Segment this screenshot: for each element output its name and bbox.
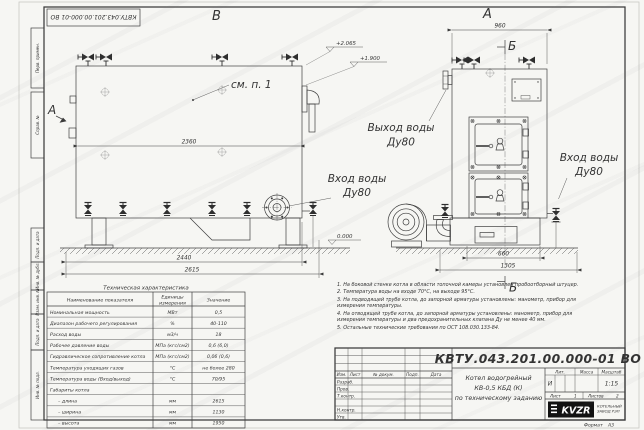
table-cell: °С (170, 365, 176, 371)
outlet-leader (429, 90, 446, 121)
see-note-label: см. п. 1 (231, 79, 272, 91)
logo-text: KVZR (562, 406, 591, 417)
tb-row-prov: Пров. (337, 386, 349, 391)
view-b-label: В (212, 9, 221, 24)
ground-hatch (60, 248, 350, 254)
drain-valve-icon (208, 203, 216, 216)
table-cell: мм (169, 411, 177, 416)
ash-door-handle (480, 233, 494, 238)
lifting-lug-icon (100, 87, 110, 97)
top-valve-icon (519, 57, 535, 70)
side-tab (70, 96, 76, 103)
top-stamp: КВТУ.043.201.00.000-01 ВО (47, 9, 140, 26)
flue-outlet (302, 86, 319, 132)
lifting-lug-icon (100, 150, 110, 160)
outlet-water-label: Выход воды (368, 122, 435, 134)
elev-top-label: +2.065 (336, 41, 357, 47)
drain-valve-icon (84, 203, 92, 216)
table-header: Наименование показателя (67, 298, 134, 304)
tech-table-rows: Номинальная мощностьМВт0,5Диапазон рабоч… (47, 310, 245, 428)
top-valve-icon (452, 57, 468, 70)
note-item: 5. Остальные технические требования по О… (337, 325, 582, 331)
dim-1305-label: 1305 (501, 264, 516, 270)
top-stamp-number: КВТУ.043.201.00.000-01 ВО (50, 13, 136, 20)
tb-row-utv: Утв. (337, 414, 346, 419)
table-cell: Температура воды (Вход/выход) (50, 376, 131, 382)
support-leg (92, 218, 106, 245)
outlet-water-dn: Ду80 (386, 137, 415, 149)
drain-valve-icon (119, 203, 127, 216)
table-header: Единицы (161, 295, 184, 301)
table-cell: 70/95 (212, 376, 226, 382)
boiler-base (450, 218, 540, 245)
support-leg (286, 218, 300, 245)
dim-2440-label: 2440 (177, 256, 192, 262)
tb-col-docum: № докум. (372, 372, 394, 377)
kvzr-logo: KVZR (548, 402, 594, 418)
table-header: измерения (159, 302, 186, 307)
format-label: Формат А3 (584, 423, 614, 429)
table-cell: МВт (168, 310, 178, 316)
tb-col-podp: Подп. (406, 372, 419, 377)
drawing-sheet: Перв. примен. Справ. № Подп. и дата Инв.… (0, 0, 644, 430)
margin-label: Инв. № дубл. (35, 262, 40, 289)
nameplate (512, 79, 541, 101)
scale-label: Масштаб (602, 369, 622, 374)
table-cell: – высота (58, 422, 79, 427)
lower-door (469, 173, 529, 218)
scale-value: 1:15 (605, 381, 619, 388)
inlet-water-label-right: Вход воды (560, 152, 619, 164)
table-cell: % (170, 321, 175, 327)
side-inlet-valve-icon (309, 203, 317, 216)
see-note-leader (194, 85, 229, 100)
tb-col-data: Дата (430, 372, 442, 377)
dim-960-label: 960 (494, 24, 505, 30)
inlet-water-dn: Ду80 (342, 187, 371, 199)
front-inlet-valve (547, 209, 561, 248)
table-cell: 0,5 (215, 310, 222, 316)
product-name-2: КВ-0,5 КБД (К) (474, 385, 522, 392)
note-item: 4. На отводящей трубе котла, до запорной… (337, 311, 582, 324)
top-valve-icon (282, 54, 298, 67)
table-cell: Температура уходящих газов (50, 365, 124, 371)
section-b-label: Б (508, 39, 516, 53)
dim-2360-label: 2360 (182, 140, 197, 146)
table-cell: мм (169, 422, 177, 427)
table-cell: 40-110 (210, 321, 227, 327)
leader-dot (192, 99, 194, 101)
table-cell: МПа (кгс/см2) (155, 343, 189, 349)
note-item: 1. На боковой стенке котла в области топ… (337, 282, 582, 288)
drain-valve-icon (163, 203, 171, 216)
margin-label: Инв. № подл. (35, 371, 40, 399)
table-cell: Диапазон рабочего регулирования (49, 321, 137, 327)
table-cell: Габариты котла (50, 387, 90, 393)
doc-number: КВТУ.043.201.00.000-01 ВО (435, 352, 642, 366)
sheet-value: 1 (574, 393, 577, 398)
side-tab (69, 128, 76, 138)
format-word: Формат (584, 423, 603, 429)
section-a-label: А (47, 103, 56, 117)
frame-margin-stamps: Перв. примен. Справ. № Подп. и дата Инв.… (31, 28, 44, 420)
dim-2615-label: 2615 (185, 268, 200, 274)
title-block: Изм. Лист № докум. Подп. Дата Разраб. Пр… (335, 348, 641, 420)
table-cell: МПа (кгс/см2) (155, 354, 189, 360)
view-a-label: А (482, 7, 492, 22)
drawing-scan: { "colors": { "ink": "#3a3a3a", "paper":… (0, 0, 644, 430)
table-cell: 0,6 (6,0) (208, 343, 228, 349)
table-cell: мм (169, 400, 177, 405)
elevation-mark-mid: +1.900 (306, 56, 387, 85)
margin-label: Подп. и дата (35, 231, 40, 259)
foot-plate (279, 245, 307, 248)
top-valve-icon (96, 54, 112, 67)
table-cell: 1950 (213, 421, 225, 427)
note-item: 3. На подводящей трубе котла, до запорно… (337, 297, 582, 310)
company-name-2: ЗАВОД РЭП (597, 409, 620, 414)
burner-elbow (436, 220, 450, 237)
margin-label: Перв. примен. (35, 43, 40, 73)
table-cell: Гидравлическое сопротивление котла (50, 354, 146, 360)
tech-table-title: Техническая характеристика (103, 286, 189, 292)
elevation-mark-zero: 0.000 (328, 234, 361, 245)
table-cell: Номинальная мощность (50, 310, 110, 316)
table-cell: Рабочее давление воды (50, 343, 110, 349)
top-valve-icon (212, 54, 228, 67)
lit-label: Лит. (554, 369, 565, 374)
front-left-valve-icon (441, 205, 449, 218)
sheets-value: 2 (616, 393, 619, 398)
tb-col-izm: Изм. (337, 372, 347, 377)
dim-660-label: 660 (498, 252, 509, 258)
inlet-leader (289, 198, 331, 206)
front-view: А 960 Б Б (368, 7, 619, 295)
lifting-lug-icon (485, 68, 495, 78)
lifting-lug-icon (217, 147, 227, 157)
tb-row-razrab: Разраб. (337, 379, 353, 384)
inlet-water-dn-right: Ду80 (574, 166, 603, 178)
sheet-label: Лист (549, 393, 561, 398)
format-value: А3 (607, 423, 614, 429)
section-a-arrow: А (47, 103, 67, 123)
elev-zero-label: 0.000 (337, 234, 353, 240)
mass-label: Масса (580, 369, 594, 374)
foot-plate (85, 245, 113, 248)
margin-label: Подп. и дата (35, 318, 40, 346)
sheets-label: Листов (587, 393, 604, 398)
margin-label: Взам. инв. № (35, 288, 40, 315)
product-name-1: Котел водогрейный (465, 375, 531, 382)
lit-value: И (548, 381, 553, 388)
table-cell: 1130 (213, 410, 225, 416)
table-cell: 2615 (213, 399, 225, 405)
water-inlet-flange (262, 193, 292, 222)
elevation-mark-top: +2.065 (306, 41, 363, 65)
product-name-3: по техническому заданию (455, 395, 543, 402)
side-view: В А см. п. 1 2360 (47, 9, 387, 278)
elev-mid-label: +1.900 (360, 56, 381, 62)
table-header: Значение (207, 298, 231, 304)
inlet-leader-right (559, 178, 568, 199)
ash-hopper (190, 218, 250, 240)
tech-table: Техническая характеристика Наименование … (47, 286, 245, 429)
note-item: 2. Температура воды на входе 70°С, на вы… (337, 289, 582, 295)
table-cell: Расход воды (50, 332, 82, 338)
ground-hatch (396, 248, 578, 254)
section-b-mark-top: Б (497, 39, 516, 54)
margin-label: Справ. № (35, 115, 40, 134)
table-cell: – ширина (58, 411, 81, 416)
drain-valve-icon (243, 203, 251, 216)
notes-block: 1. На боковой стенке котла в области топ… (337, 282, 582, 332)
table-cell: 0,06 (0,6) (207, 354, 230, 360)
table-cell: – длина (58, 400, 77, 405)
table-cell: 18 (216, 332, 222, 338)
upper-door (469, 117, 529, 171)
table-cell: м3/ч (167, 332, 178, 338)
table-cell: °С (170, 376, 176, 382)
table-cell: не более 280 (202, 365, 234, 371)
water-outlet-flange (443, 71, 452, 89)
tb-col-list: Лист (349, 372, 361, 377)
inlet-water-label: Вход воды (328, 173, 387, 185)
tb-row-tkontr: Т.контр. (337, 393, 355, 398)
ash-door (475, 227, 517, 244)
tb-row-nkontr: Н.контр. (337, 407, 356, 412)
fan-blower (388, 204, 453, 247)
top-valve-icon (78, 54, 94, 67)
